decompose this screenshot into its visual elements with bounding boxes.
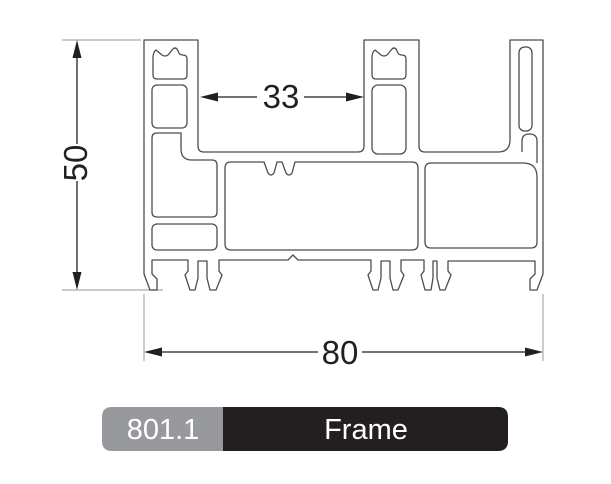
chamber-right-upstand-top: [372, 48, 406, 79]
profile-code: 801.1: [127, 414, 200, 446]
chamber-left-bottom: [152, 224, 217, 250]
dimension-inner-width: 33: [200, 78, 364, 115]
chamber-left-second: [152, 85, 187, 128]
dimension-height: 50: [57, 40, 94, 290]
arrowhead-up: [73, 40, 82, 58]
frame-profile-drawing: 50 33 80 801.1 Frame: [0, 0, 611, 484]
chamber-right-upstand-lower: [372, 85, 406, 154]
arrowhead-right: [346, 93, 364, 102]
arrowhead-left: [200, 93, 218, 102]
dimension-total-width: 80: [144, 334, 543, 371]
chamber-right-slot: [519, 47, 532, 131]
label-bar: 801.1 Frame: [102, 407, 508, 451]
profile-name: Frame: [324, 414, 408, 446]
profile-outline: [144, 40, 543, 290]
technical-drawing-page: 50 33 80 801.1 Frame: [0, 0, 611, 484]
arrowhead-left: [144, 348, 162, 357]
arrowhead-down: [73, 272, 82, 290]
dimension-total-width-value: 80: [322, 334, 359, 371]
chamber-right-large: [425, 163, 537, 248]
arrowhead-right: [525, 348, 543, 357]
chamber-central: [225, 162, 418, 250]
profile-knob: [522, 134, 537, 163]
dimension-inner-width-value: 33: [263, 78, 300, 115]
chamber-left-top: [153, 48, 187, 79]
extension-lines: [62, 40, 543, 361]
dimension-height-value: 50: [57, 145, 94, 182]
profile-cross-section: [144, 40, 543, 290]
chamber-left-large: [152, 133, 217, 217]
